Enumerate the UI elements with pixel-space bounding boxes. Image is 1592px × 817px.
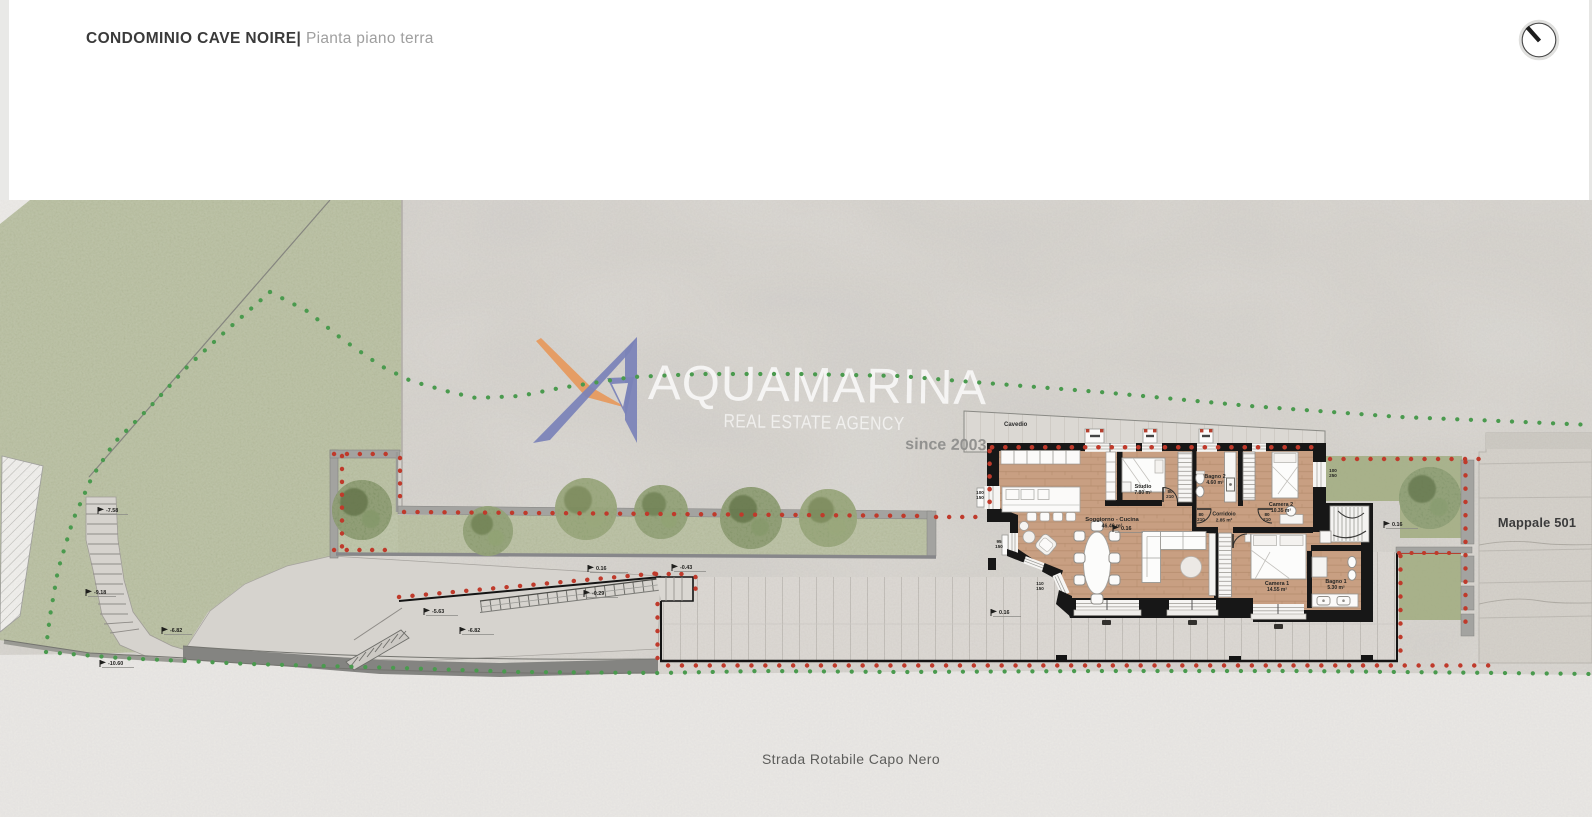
svg-text:Strada Rotabile Capo Nero: Strada Rotabile Capo Nero xyxy=(762,751,940,767)
svg-text:REAL ESTATE AGENCY: REAL ESTATE AGENCY xyxy=(723,411,904,435)
svg-text:since 2003: since 2003 xyxy=(905,436,987,454)
svg-text:-0.43: -0.43 xyxy=(680,565,692,571)
svg-text:210: 210 xyxy=(1263,517,1271,522)
svg-text:4.60 m²: 4.60 m² xyxy=(1206,480,1224,486)
svg-text:-6.82: -6.82 xyxy=(170,628,182,634)
svg-text:250: 250 xyxy=(1329,473,1337,478)
svg-text:AQUAMARINA: AQUAMARINA xyxy=(648,356,991,415)
svg-text:5.30 m²: 5.30 m² xyxy=(1327,585,1345,591)
svg-text:150: 150 xyxy=(995,544,1003,549)
svg-text:-0.29: -0.29 xyxy=(592,591,604,597)
svg-text:7.80 m²: 7.80 m² xyxy=(1134,490,1152,496)
svg-text:-10.60: -10.60 xyxy=(108,661,123,667)
svg-text:Corridoio: Corridoio xyxy=(1212,512,1235,518)
svg-text:0.16: 0.16 xyxy=(1121,526,1132,532)
svg-text:10.35 m²: 10.35 m² xyxy=(1271,508,1291,514)
svg-text:14.55 m²: 14.55 m² xyxy=(1267,587,1287,593)
svg-text:-9.18: -9.18 xyxy=(94,590,106,596)
svg-text:Soggiorno - Cucina: Soggiorno - Cucina xyxy=(1085,517,1139,523)
svg-text:0.16: 0.16 xyxy=(999,610,1010,616)
svg-text:-6.82: -6.82 xyxy=(468,628,480,634)
svg-text:-5.63: -5.63 xyxy=(432,609,444,615)
svg-text:210: 210 xyxy=(1166,494,1174,499)
svg-text:-7.58: -7.58 xyxy=(106,508,118,514)
svg-text:Mappale 501: Mappale 501 xyxy=(1498,515,1576,530)
svg-text:46.40 m²: 46.40 m² xyxy=(1102,524,1123,530)
svg-text:150: 150 xyxy=(1036,586,1044,591)
svg-text:0.16: 0.16 xyxy=(596,566,607,572)
svg-text:210: 210 xyxy=(1197,517,1205,522)
svg-text:Cavedio: Cavedio xyxy=(1004,422,1028,428)
svg-text:2.85 m²: 2.85 m² xyxy=(1216,518,1233,524)
svg-text:150: 150 xyxy=(976,495,984,500)
svg-text:0.16: 0.16 xyxy=(1392,522,1403,528)
